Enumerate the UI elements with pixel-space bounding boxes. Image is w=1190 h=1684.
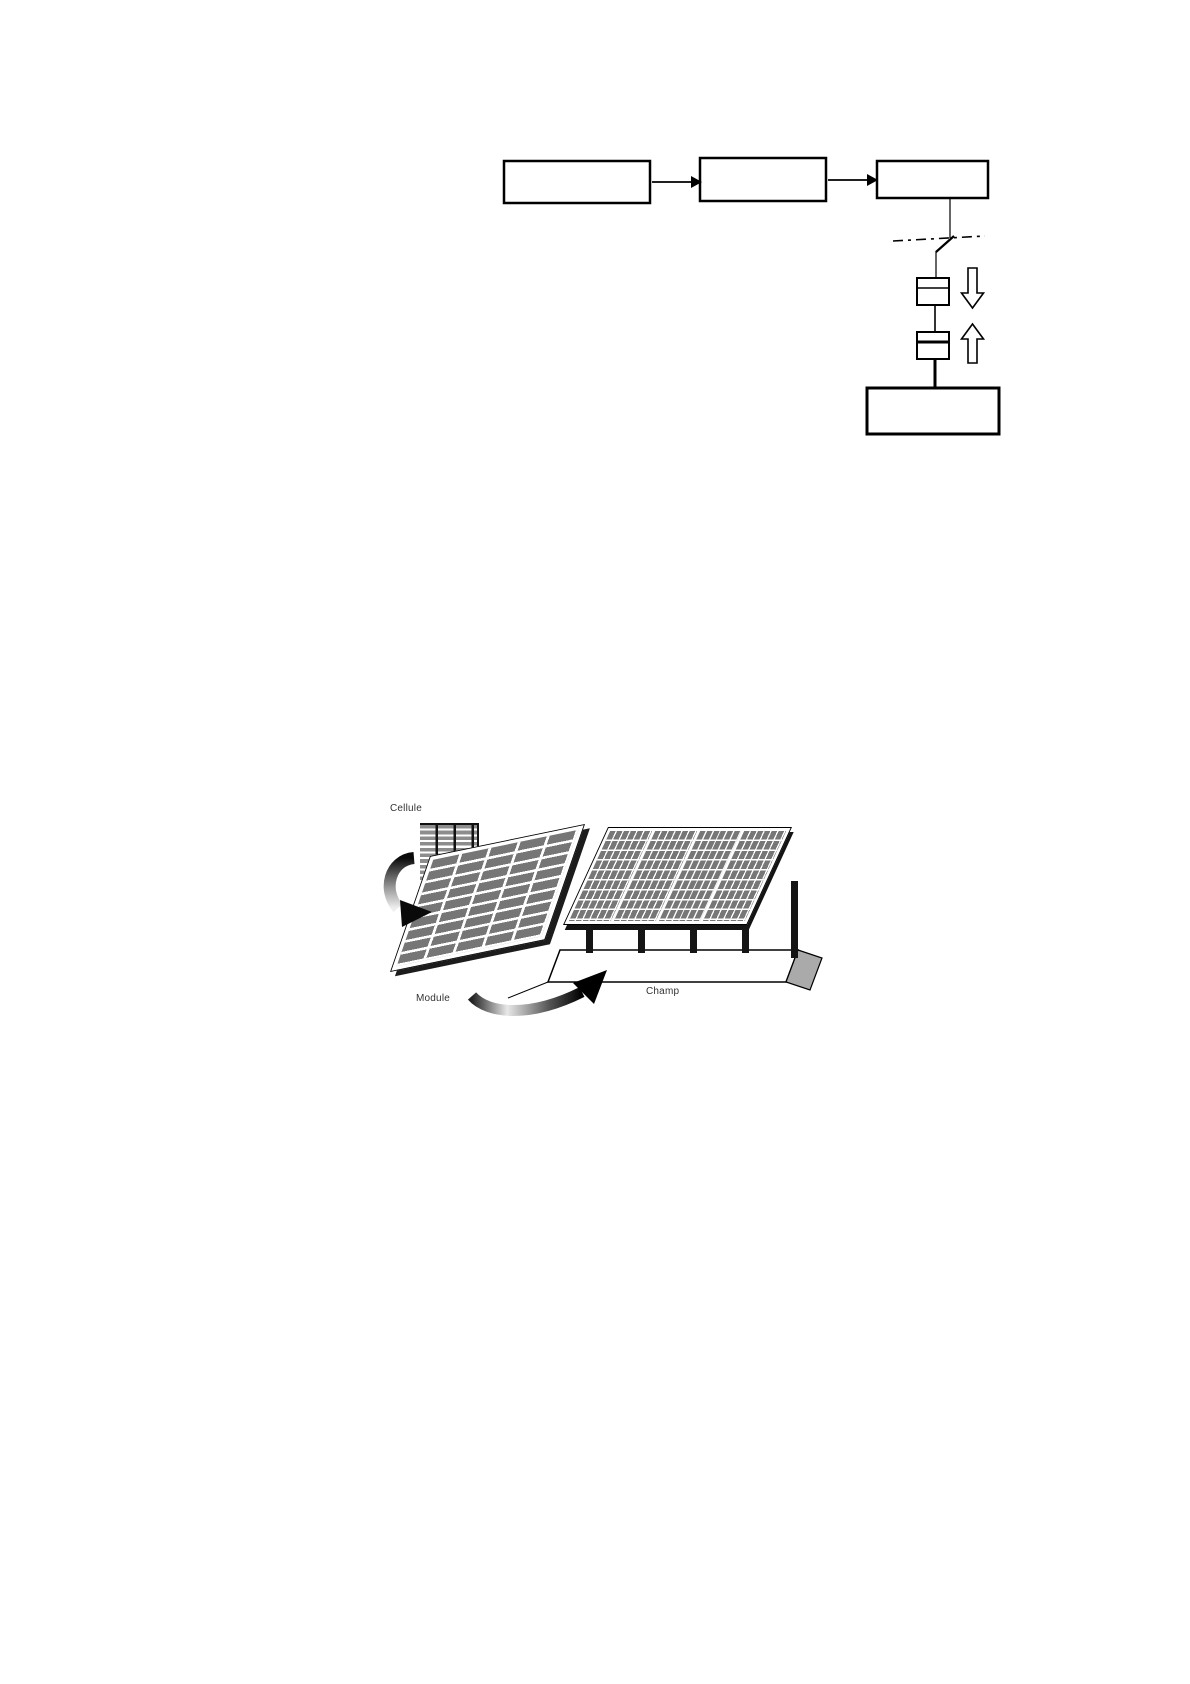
field-base-ground-line [508,982,548,998]
block-diagram-canvas [495,150,1015,450]
field-rear-leg [791,881,798,958]
module-to-field-arrow-body [472,992,582,1011]
field-panel-array [563,827,792,925]
boundary-dash-dot-line [893,236,985,241]
field-post [742,926,749,953]
meter-box-1 [917,278,949,305]
flow-box-2 [700,158,826,201]
module-to-field-arrow-head [573,970,607,1004]
figure-block-diagram [495,150,1015,450]
field-post [690,926,697,953]
arrow-down-icon [962,268,984,308]
label-module: Module [416,993,450,1004]
flow-box-3 [877,161,988,198]
meter-box-2 [917,332,949,359]
document-page: Cellule Module Champ [0,0,1190,1684]
field-post [638,926,645,953]
flow-box-1 [504,161,650,203]
bottom-box [867,388,999,434]
label-cellule: Cellule [390,803,422,814]
cell-to-module-arrow-body [390,858,414,908]
figure-pv-cell-module-field: Cellule Module Champ [360,800,830,1030]
arrow-up-icon [962,324,984,363]
label-champ: Champ [646,986,679,997]
field-post [586,926,593,953]
field-base-front-face [548,950,798,982]
